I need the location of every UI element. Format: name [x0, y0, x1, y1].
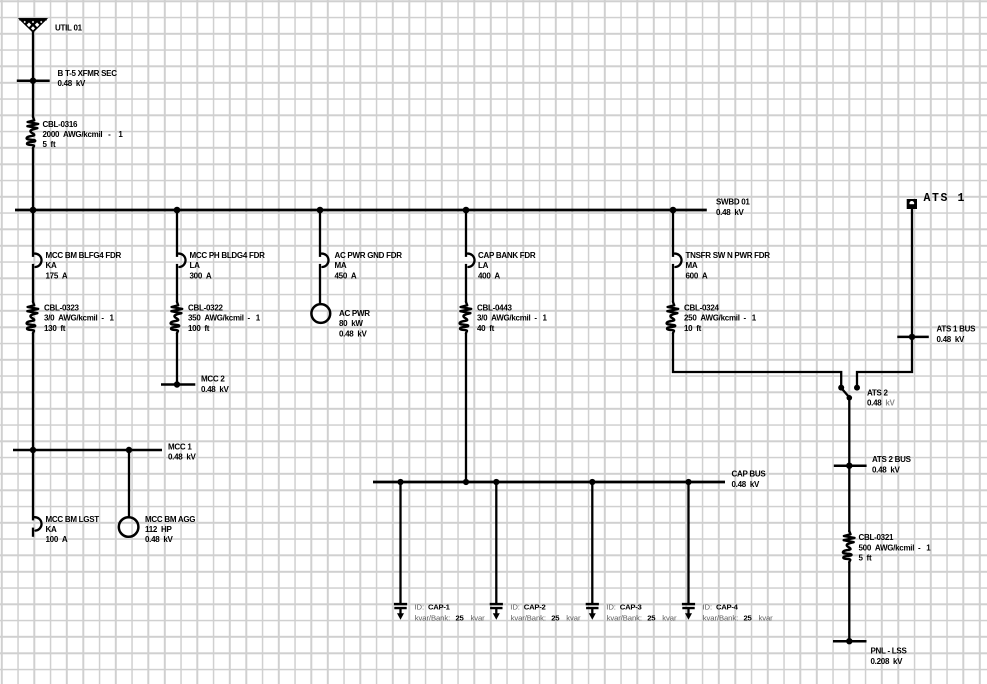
svg-text:0.48 kV: 0.48 kV	[145, 535, 174, 544]
svg-text:10 ft: 10 ft	[684, 324, 702, 333]
svg-text:kvar/Bank:: kvar/Bank:	[511, 614, 546, 623]
svg-text:100 ft: 100 ft	[188, 324, 210, 333]
svg-text:ID:: ID:	[510, 603, 520, 612]
svg-text:MCC BM LGST: MCC BM LGST	[46, 515, 100, 524]
svg-text:MCC 2: MCC 2	[201, 375, 225, 384]
svg-text:2000 AWG/kcmil - 1: 2000 AWG/kcmil - 1	[43, 130, 124, 139]
svg-text:MA: MA	[686, 261, 698, 270]
svg-text:ATS 2 BUS: ATS 2 BUS	[872, 455, 912, 464]
svg-text:450 A: 450 A	[335, 271, 357, 280]
svg-text:kvar: kvar	[759, 614, 774, 623]
svg-text:CAP-1: CAP-1	[428, 603, 451, 612]
svg-text:KA: KA	[46, 261, 57, 270]
svg-text:5 ft: 5 ft	[859, 554, 872, 563]
svg-text:CAP BANK FDR: CAP BANK FDR	[478, 251, 536, 260]
svg-text:MCC PH BLDG4 FDR: MCC PH BLDG4 FDR	[190, 251, 266, 260]
svg-text:250 AWG/kcmil - 1: 250 AWG/kcmil - 1	[684, 314, 757, 323]
svg-text:CBL-0322: CBL-0322	[188, 304, 223, 313]
svg-text:KA: KA	[46, 525, 57, 534]
svg-text:0.48 kV: 0.48 kV	[872, 465, 901, 474]
svg-text:0.48 kV: 0.48 kV	[937, 335, 966, 344]
svg-text:600 A: 600 A	[686, 271, 708, 280]
svg-text:500 AWG/kcmil - 1: 500 AWG/kcmil - 1	[859, 543, 932, 552]
svg-text:ID:: ID:	[703, 603, 713, 612]
svg-text:MCC BM BLFG4 FDR: MCC BM BLFG4 FDR	[46, 251, 122, 260]
svg-text:0.48 kV: 0.48 kV	[867, 399, 896, 408]
svg-text:CBL-0321: CBL-0321	[859, 533, 894, 542]
svg-text:ATS 1 BUS: ATS 1 BUS	[937, 325, 977, 334]
svg-text:CBL-0324: CBL-0324	[684, 304, 719, 313]
svg-text:CBL-0323: CBL-0323	[44, 304, 79, 313]
svg-text:MA: MA	[335, 261, 347, 270]
svg-text:CAP-3: CAP-3	[620, 603, 642, 612]
svg-text:112 HP: 112 HP	[145, 525, 172, 534]
svg-text:kvar/Bank:: kvar/Bank:	[415, 614, 450, 623]
svg-text:25: 25	[647, 614, 656, 623]
svg-text:MCC BM AGG: MCC BM AGG	[145, 515, 195, 524]
svg-text:0.48 kV: 0.48 kV	[732, 480, 761, 489]
svg-text:130 ft: 130 ft	[44, 324, 66, 333]
svg-text:300 A: 300 A	[190, 271, 212, 280]
svg-text:MCC 1: MCC 1	[168, 442, 192, 451]
svg-text:0.208 kV: 0.208 kV	[871, 657, 904, 666]
svg-text:kvar/Bank:: kvar/Bank:	[703, 614, 738, 623]
svg-text:0.48 kV: 0.48 kV	[168, 453, 197, 462]
svg-text:100 A: 100 A	[46, 535, 68, 544]
svg-text:SWBD 01: SWBD 01	[716, 198, 750, 207]
svg-text:CAP-4: CAP-4	[716, 603, 739, 612]
svg-text:TNSFR SW N PWR FDR: TNSFR SW N PWR FDR	[686, 251, 771, 260]
svg-text:CAP-2: CAP-2	[524, 603, 546, 612]
svg-text:LA: LA	[478, 261, 489, 270]
svg-text:PNL - LSS: PNL - LSS	[871, 647, 908, 656]
svg-text:CBL-0316: CBL-0316	[43, 120, 78, 129]
svg-text:LA: LA	[190, 261, 201, 270]
svg-text:CAP BUS: CAP BUS	[732, 470, 767, 479]
svg-text:ID:: ID:	[606, 603, 616, 612]
svg-text:3/0 AWG/kcmil - 1: 3/0 AWG/kcmil - 1	[44, 314, 115, 323]
svg-text:5 ft: 5 ft	[43, 140, 56, 149]
svg-text:kvar/Bank:: kvar/Bank:	[607, 614, 642, 623]
svg-text:175 A: 175 A	[46, 271, 68, 280]
svg-text:kvar: kvar	[662, 614, 677, 623]
svg-text:0.48 kV: 0.48 kV	[716, 208, 745, 217]
svg-text:400 A: 400 A	[478, 271, 500, 280]
svg-text:CBL-0443: CBL-0443	[477, 304, 512, 313]
svg-text:0.48 kV: 0.48 kV	[201, 385, 230, 394]
svg-text:kvar: kvar	[471, 614, 486, 623]
svg-text:0.48 kV: 0.48 kV	[339, 329, 368, 338]
svg-text:ATS 1: ATS 1	[924, 192, 967, 205]
svg-text:25: 25	[551, 614, 560, 623]
svg-text:ATS 2: ATS 2	[867, 388, 889, 397]
svg-text:80 kW: 80 kW	[339, 319, 363, 328]
svg-text:0.48 kV: 0.48 kV	[58, 79, 87, 88]
svg-text:AC PWR GND FDR: AC PWR GND FDR	[335, 251, 403, 260]
svg-text:kvar: kvar	[566, 614, 581, 623]
svg-text:UTIL 01: UTIL 01	[55, 24, 83, 33]
svg-text:25: 25	[744, 614, 753, 623]
svg-text:AC PWR: AC PWR	[339, 309, 370, 318]
svg-text:350 AWG/kcmil - 1: 350 AWG/kcmil - 1	[188, 314, 261, 323]
svg-text:3/0 AWG/kcmil - 1: 3/0 AWG/kcmil - 1	[477, 314, 548, 323]
svg-text:ID:: ID:	[415, 603, 425, 612]
svg-text:B T-5 XFMR SEC: B T-5 XFMR SEC	[58, 69, 118, 78]
svg-text:25: 25	[456, 614, 465, 623]
svg-text:40 ft: 40 ft	[477, 324, 495, 333]
